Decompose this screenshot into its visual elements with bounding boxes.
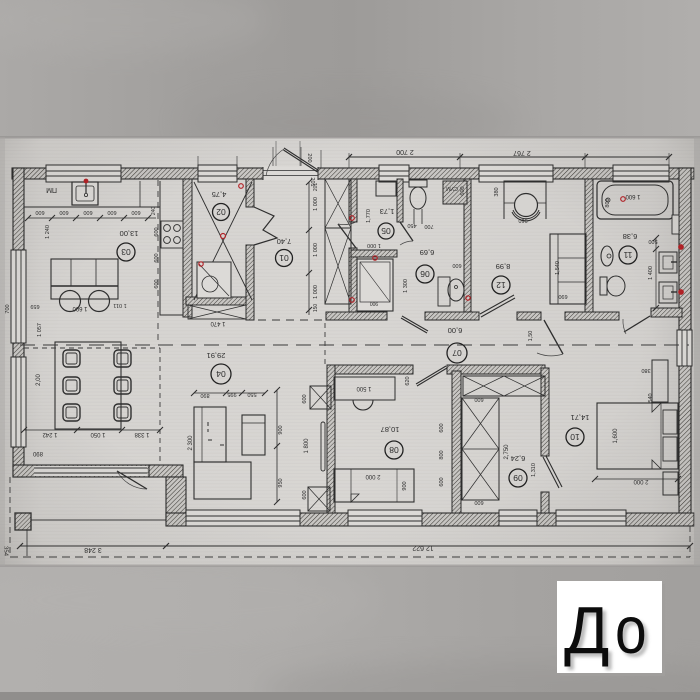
svg-text:о: о xyxy=(615,594,647,668)
svg-text:Д: Д xyxy=(564,593,609,668)
